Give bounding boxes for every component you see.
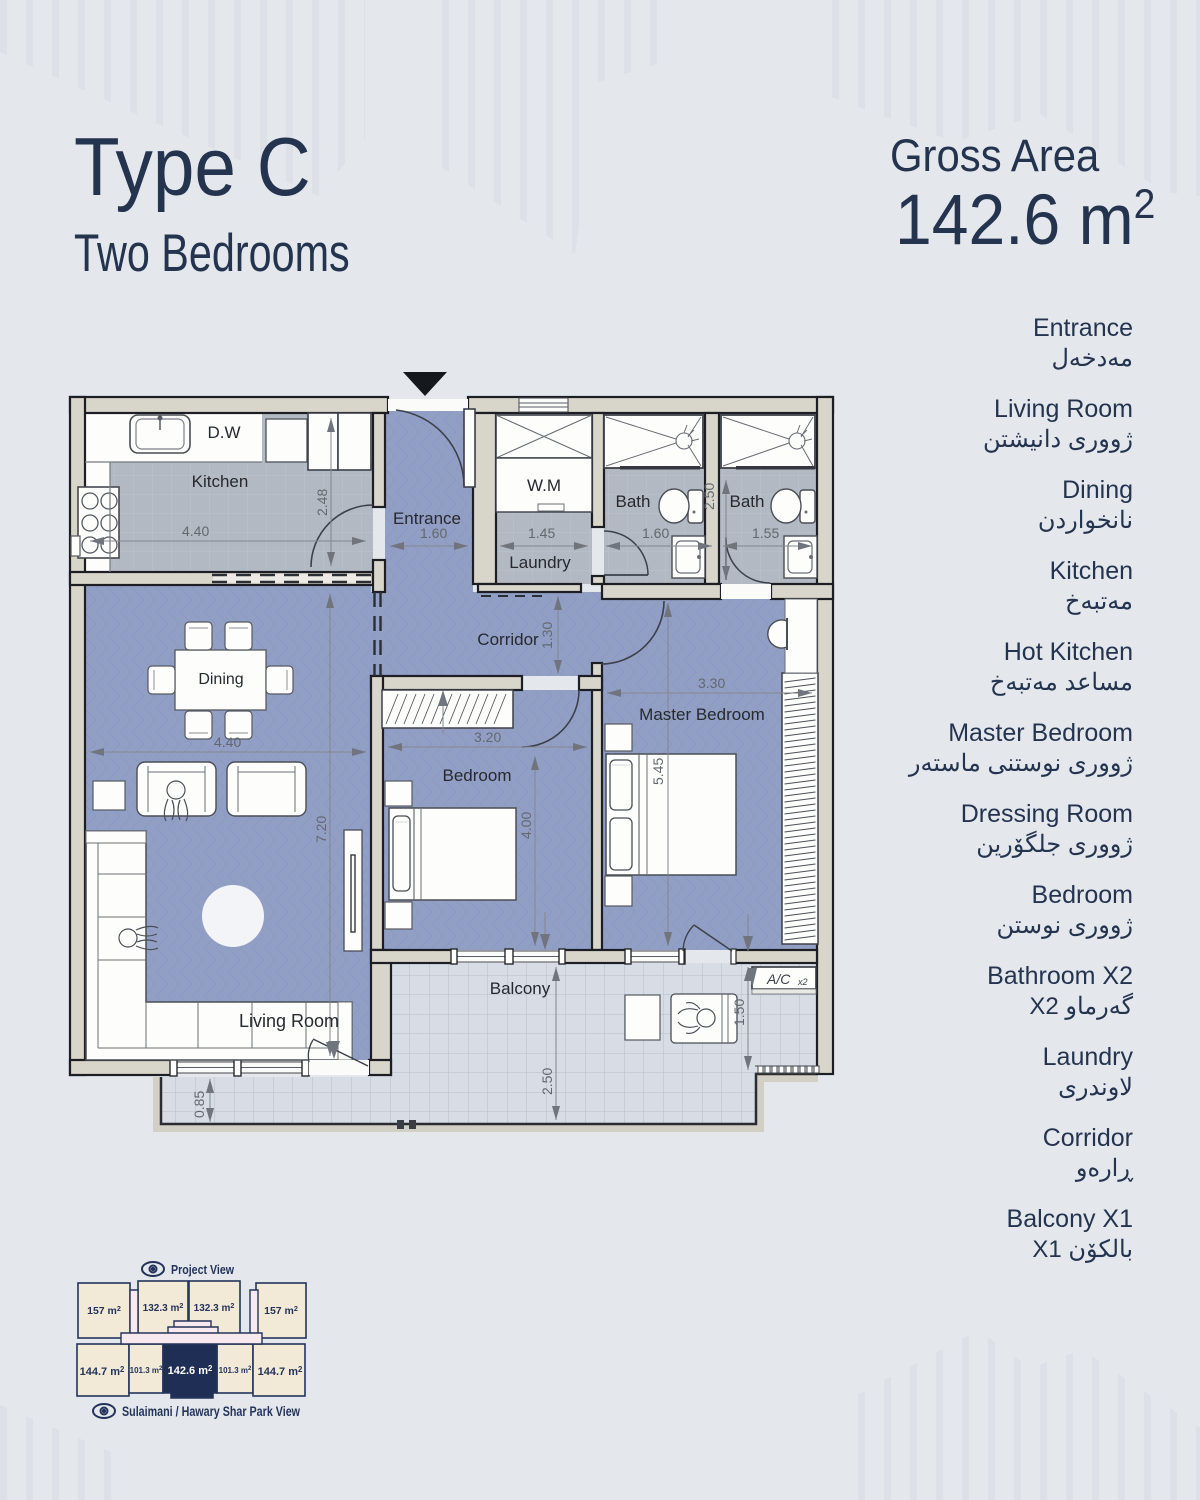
- svg-text:101.3 m2: 101.3 m2: [130, 1366, 163, 1375]
- svg-text:144.7 m2: 144.7 m2: [258, 1365, 303, 1378]
- svg-text:Sulaimani / Hawary Shar Park V: Sulaimani / Hawary Shar Park View: [122, 1404, 300, 1419]
- svg-text:132.3 m2: 132.3 m2: [143, 1301, 184, 1314]
- svg-text:157 m2: 157 m2: [87, 1304, 121, 1317]
- svg-text:101.3 m2: 101.3 m2: [219, 1366, 252, 1375]
- svg-text:157 m2: 157 m2: [264, 1304, 298, 1317]
- svg-text:Project View: Project View: [171, 1262, 235, 1277]
- svg-text:144.7 m2: 144.7 m2: [80, 1365, 125, 1378]
- svg-text:132.3 m2: 132.3 m2: [194, 1301, 235, 1314]
- svg-text:142.6 m2: 142.6 m2: [168, 1364, 213, 1377]
